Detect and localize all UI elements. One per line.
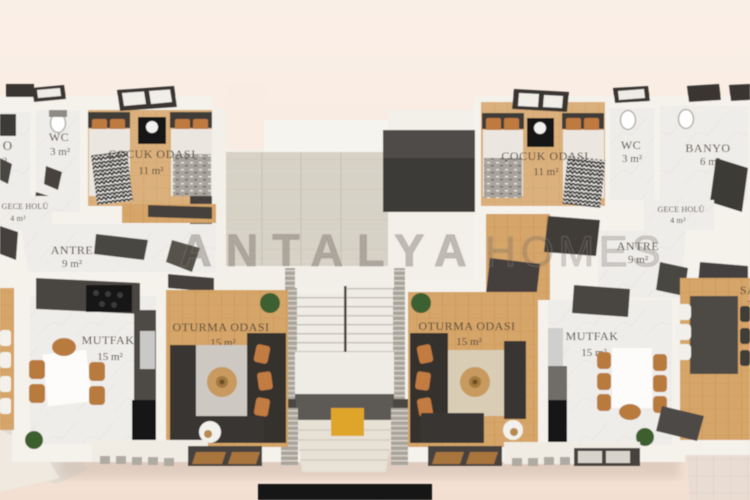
svg-text:4 m²: 4 m² bbox=[10, 214, 26, 223]
svg-text:11 m²: 11 m² bbox=[533, 166, 559, 178]
svg-text:2: 2 bbox=[3, 156, 8, 166]
svg-text:SA: SA bbox=[740, 283, 750, 297]
svg-text:MUTFAK: MUTFAK bbox=[82, 333, 135, 347]
svg-text:15 m²: 15 m² bbox=[97, 351, 123, 363]
svg-text:6 m²: 6 m² bbox=[700, 156, 721, 168]
svg-text:ÇOCUK ODASI: ÇOCUK ODASI bbox=[108, 147, 195, 161]
svg-text:3 m²: 3 m² bbox=[50, 146, 71, 158]
svg-text:11 m²: 11 m² bbox=[138, 165, 164, 177]
svg-text:ANTALYA: ANTALYA bbox=[179, 225, 480, 276]
svg-text:15 m²: 15 m² bbox=[456, 336, 482, 348]
svg-text:4 m²: 4 m² bbox=[670, 216, 686, 225]
svg-text:ANTRE: ANTRE bbox=[51, 243, 94, 257]
svg-text:MUTFAK: MUTFAK bbox=[566, 329, 619, 343]
svg-text:O: O bbox=[3, 138, 13, 153]
svg-text:WC: WC bbox=[49, 130, 69, 144]
svg-text:3 m²: 3 m² bbox=[622, 153, 643, 165]
svg-text:WC: WC bbox=[621, 138, 641, 152]
svg-text:BANYO: BANYO bbox=[685, 141, 730, 155]
svg-text:GECE HOLÜ: GECE HOLÜ bbox=[2, 202, 49, 211]
svg-text:9 m²: 9 m² bbox=[62, 258, 83, 270]
svg-text:HOMES: HOMES bbox=[485, 228, 665, 276]
svg-text:OTURMA ODASI: OTURMA ODASI bbox=[172, 320, 269, 334]
svg-text:ÇOCUK ODASI: ÇOCUK ODASI bbox=[501, 149, 588, 163]
svg-text:OTURMA ODASI: OTURMA ODASI bbox=[418, 319, 515, 333]
svg-text:GECE HOLÜ: GECE HOLÜ bbox=[658, 205, 705, 214]
